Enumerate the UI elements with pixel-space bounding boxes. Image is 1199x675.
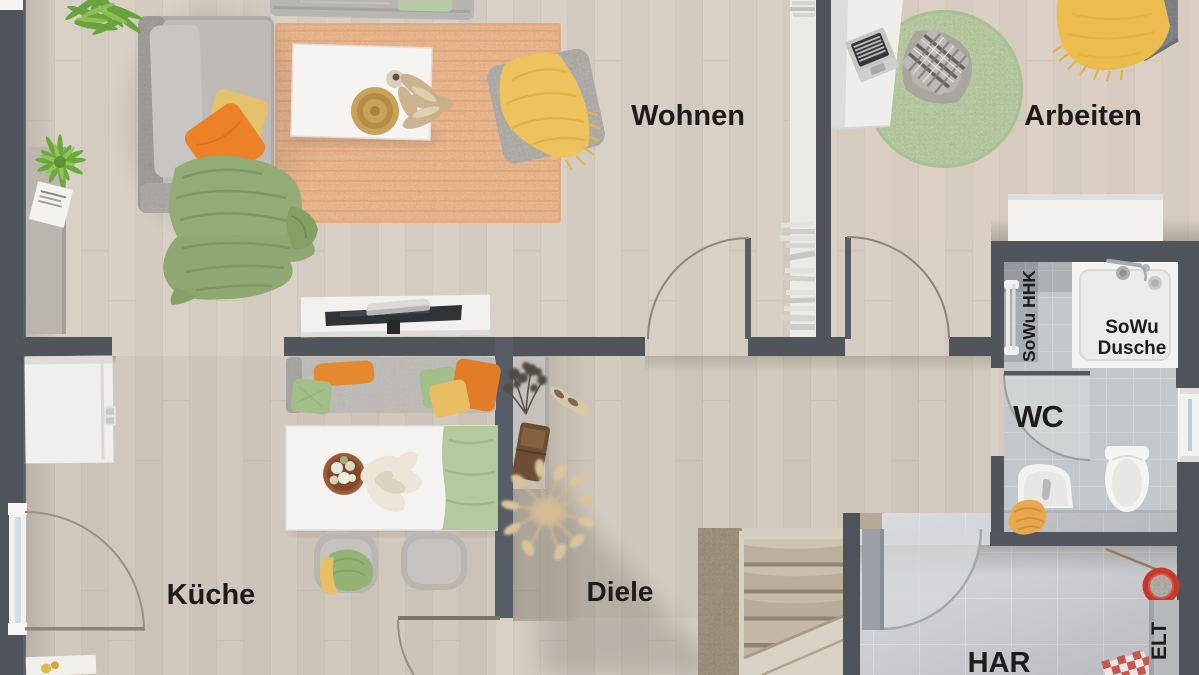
svg-text:SoWu HHK: SoWu HHK <box>1019 270 1039 362</box>
svg-text:SoWu: SoWu <box>1105 317 1158 338</box>
svg-text:HAR: HAR <box>968 647 1031 675</box>
svg-text:Dusche: Dusche <box>1098 338 1167 359</box>
svg-text:Arbeiten: Arbeiten <box>1024 100 1142 132</box>
svg-text:WC: WC <box>1013 399 1063 434</box>
svg-text:ELT: ELT <box>1148 622 1171 660</box>
svg-text:Küche: Küche <box>167 579 256 611</box>
svg-text:Wohnen: Wohnen <box>631 100 745 132</box>
svg-text:Diele: Diele <box>587 576 654 607</box>
